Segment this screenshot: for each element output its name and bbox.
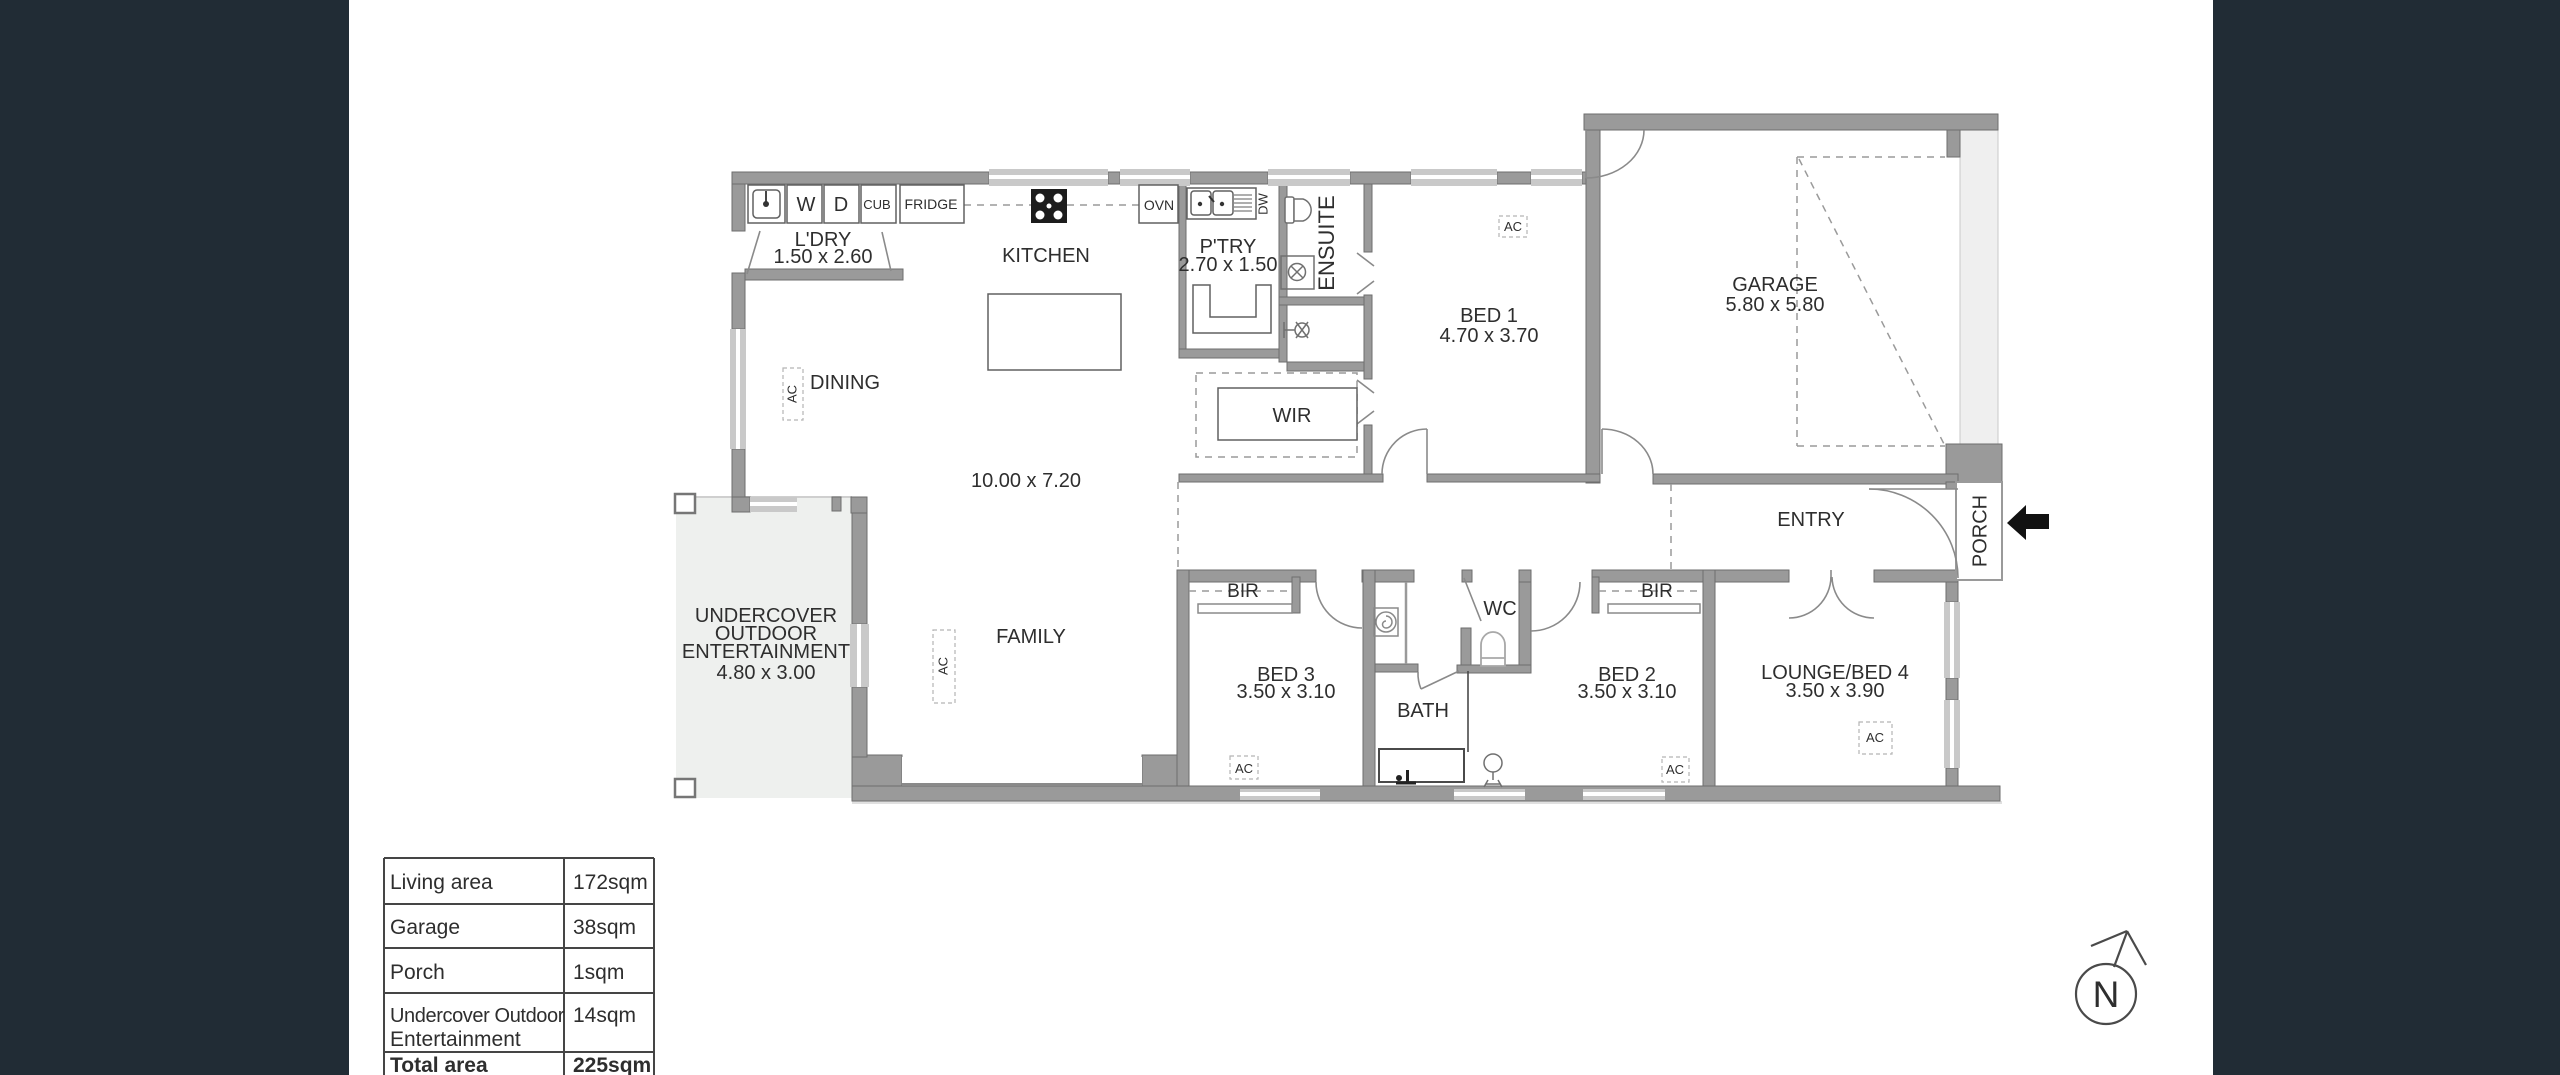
svg-text:BIR: BIR (1227, 581, 1259, 602)
svg-text:BATH: BATH (1397, 700, 1449, 722)
svg-text:N: N (2093, 974, 2120, 1015)
svg-text:ENTRY: ENTRY (1777, 509, 1844, 531)
svg-text:Entertainment: Entertainment (390, 1028, 521, 1051)
svg-text:ENTERTAINMENT: ENTERTAINMENT (682, 641, 850, 663)
svg-text:KITCHEN: KITCHEN (1002, 245, 1090, 267)
svg-text:Garage: Garage (390, 916, 460, 939)
svg-text:AC: AC (1504, 219, 1522, 234)
svg-text:4.70 x 3.70: 4.70 x 3.70 (1440, 325, 1539, 347)
svg-text:AC: AC (1235, 761, 1253, 776)
svg-text:3.50 x 3.90: 3.50 x 3.90 (1786, 680, 1885, 702)
svg-text:2.70 x 1.50: 2.70 x 1.50 (1179, 254, 1278, 276)
svg-text:FRIDGE: FRIDGE (905, 196, 958, 212)
svg-text:14sqm: 14sqm (573, 1004, 636, 1027)
svg-text:WIR: WIR (1273, 405, 1312, 427)
svg-text:AC: AC (1866, 730, 1884, 745)
svg-text:BED 1: BED 1 (1460, 305, 1518, 327)
svg-text:FAMILY: FAMILY (996, 626, 1066, 648)
svg-text:D: D (834, 194, 848, 216)
svg-text:AC: AC (784, 385, 799, 403)
svg-text:Living area: Living area (390, 871, 493, 894)
svg-text:DW: DW (1255, 192, 1270, 214)
svg-text:3.50 x 3.10: 3.50 x 3.10 (1578, 681, 1677, 703)
svg-text:CUB: CUB (863, 197, 890, 212)
svg-text:Porch: Porch (390, 961, 445, 984)
svg-text:W: W (797, 194, 816, 216)
svg-text:AC: AC (1666, 762, 1684, 777)
svg-text:172sqm: 172sqm (573, 871, 648, 894)
svg-text:DINING: DINING (810, 372, 880, 394)
svg-text:Undercover Outdoor: Undercover Outdoor (390, 1005, 565, 1027)
svg-text:GARAGE: GARAGE (1732, 274, 1818, 296)
svg-text:225sqm: 225sqm (573, 1054, 651, 1075)
svg-text:WC: WC (1483, 598, 1516, 620)
svg-text:10.00 x 7.20: 10.00 x 7.20 (971, 470, 1081, 492)
svg-text:BIR: BIR (1641, 581, 1673, 602)
svg-text:ENSUITE: ENSUITE (1314, 195, 1339, 290)
svg-text:OVN: OVN (1144, 197, 1174, 213)
svg-text:5.80 x 5.80: 5.80 x 5.80 (1726, 294, 1825, 316)
svg-text:AC: AC (935, 657, 950, 675)
svg-text:1.50 x 2.60: 1.50 x 2.60 (774, 246, 873, 268)
svg-text:Total area: Total area (390, 1054, 488, 1075)
svg-text:38sqm: 38sqm (573, 916, 636, 939)
svg-text:4.80 x 3.00: 4.80 x 3.00 (717, 662, 816, 684)
svg-text:3.50 x 3.10: 3.50 x 3.10 (1237, 681, 1336, 703)
svg-text:1sqm: 1sqm (573, 961, 624, 984)
svg-text:PORCH: PORCH (1969, 495, 1991, 567)
